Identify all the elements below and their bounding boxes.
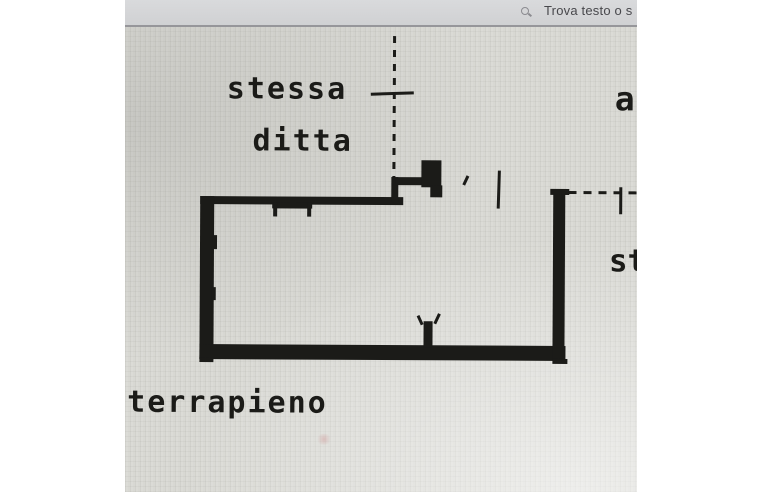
floorplan-drawing: stessa ditta a st terrapieno	[125, 0, 637, 492]
wall-left-pillar-mark-2	[212, 287, 216, 300]
chimney-mark-tick-right	[433, 313, 440, 324]
wall-bottom	[199, 344, 565, 361]
wall-right	[552, 191, 565, 361]
wall-left	[199, 196, 214, 359]
pillar-foot	[430, 185, 442, 197]
small-diagonal-tick	[462, 175, 469, 185]
boundary-dashed-vertical	[392, 36, 396, 179]
boundary-cross-tick	[371, 91, 414, 95]
window-sill-tick-right	[307, 203, 311, 217]
label-st-partial: st	[609, 243, 637, 279]
wall-opening-tick	[497, 171, 501, 209]
label-terrapieno: terrapieno	[127, 385, 328, 421]
photo-smudge	[316, 434, 332, 445]
wall-bottom-right-foot	[552, 359, 567, 364]
boundary-horizontal-tick	[619, 187, 622, 214]
wall-bottom-left-foot	[199, 357, 213, 362]
boundary-dashed-horizontal	[568, 191, 637, 194]
window-sill-tick-left	[273, 202, 277, 216]
scanned-floorplan-photo: Trova testo o s stessa ditta a st terrap…	[125, 0, 637, 492]
label-a-partial: a	[615, 79, 635, 118]
label-ditta: ditta	[252, 123, 352, 159]
wall-right-top-cap	[550, 189, 569, 195]
wall-left-pillar-mark-1	[212, 235, 217, 249]
label-stessa: stessa	[227, 71, 348, 107]
hatched-pillar-block	[421, 160, 441, 187]
chimney-mark-stem	[423, 321, 432, 347]
chimney-mark-tick-left	[417, 315, 424, 325]
